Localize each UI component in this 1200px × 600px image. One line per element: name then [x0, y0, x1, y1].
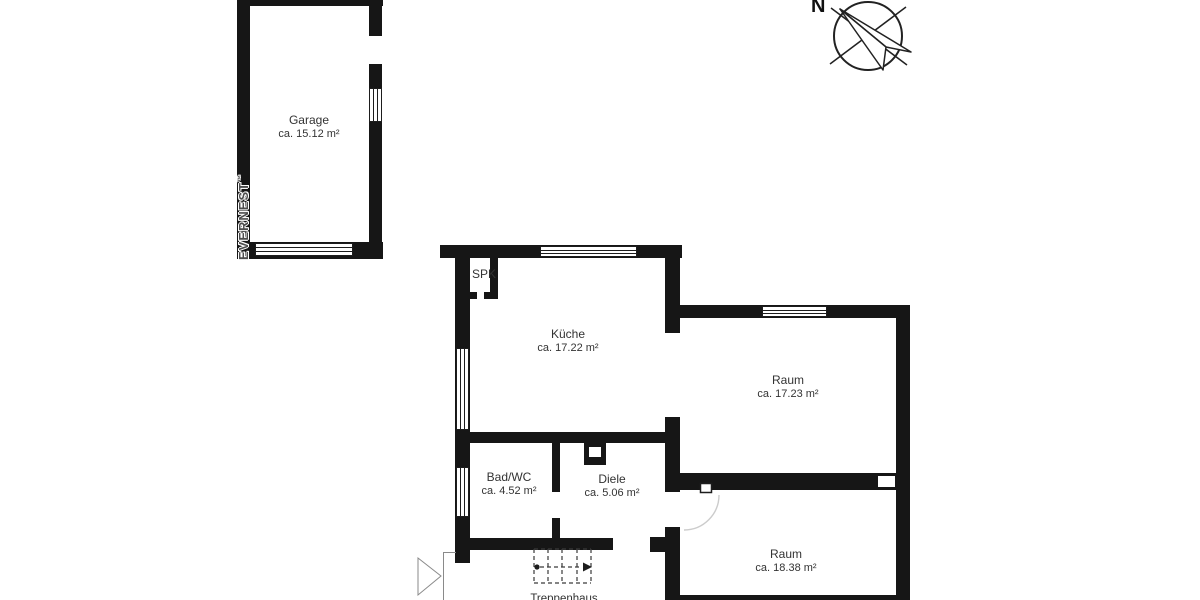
entrance-steps [418, 552, 456, 600]
compass-north-label: N [811, 0, 825, 18]
door-swing-arc [684, 495, 719, 530]
staircase-symbol [534, 549, 591, 583]
compass-rose [830, 2, 911, 70]
door-leaf [701, 484, 712, 493]
plan-overlay [0, 0, 1200, 600]
floor-plan: EVERNEST™ Garage ca. 15.12 m² SPK Küche … [0, 0, 1200, 600]
